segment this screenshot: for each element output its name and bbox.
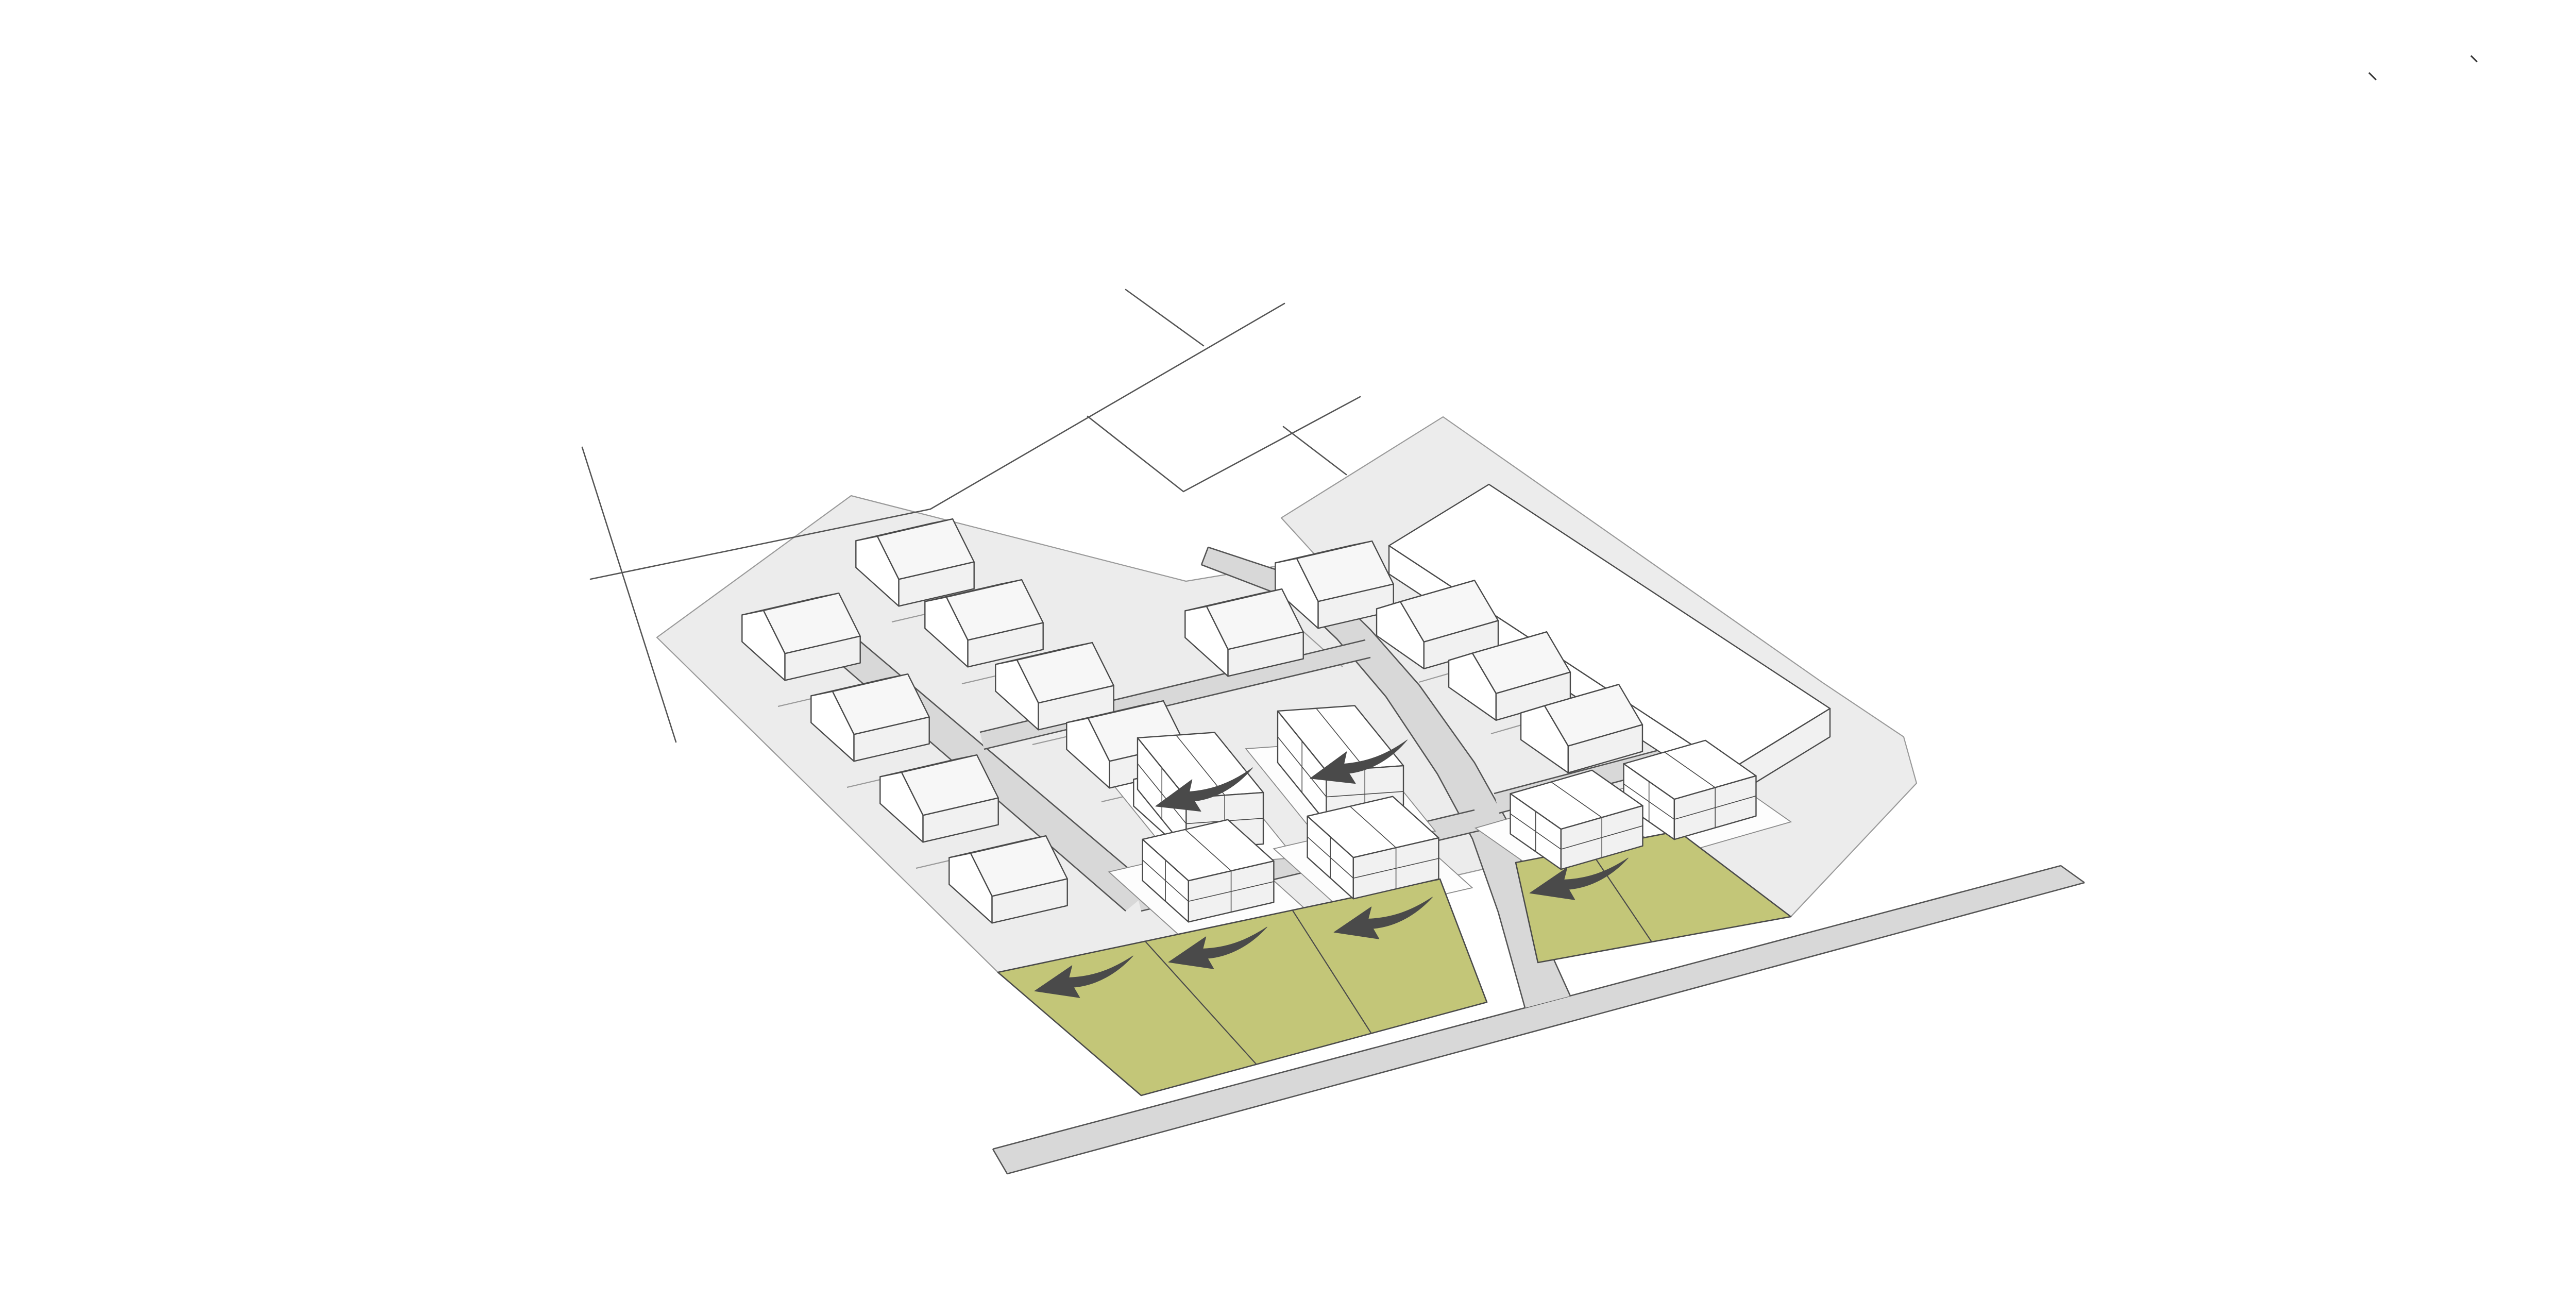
crop-mark bbox=[2369, 73, 2376, 80]
page bbox=[0, 0, 2576, 1316]
property-boundary-line bbox=[1126, 290, 1204, 346]
site-axonometric-diagram bbox=[0, 0, 2576, 1316]
property-boundary-line bbox=[582, 447, 676, 742]
crop-mark bbox=[2471, 56, 2477, 62]
property-boundary-line bbox=[1088, 397, 1360, 492]
property-boundary-line bbox=[1283, 427, 1346, 475]
